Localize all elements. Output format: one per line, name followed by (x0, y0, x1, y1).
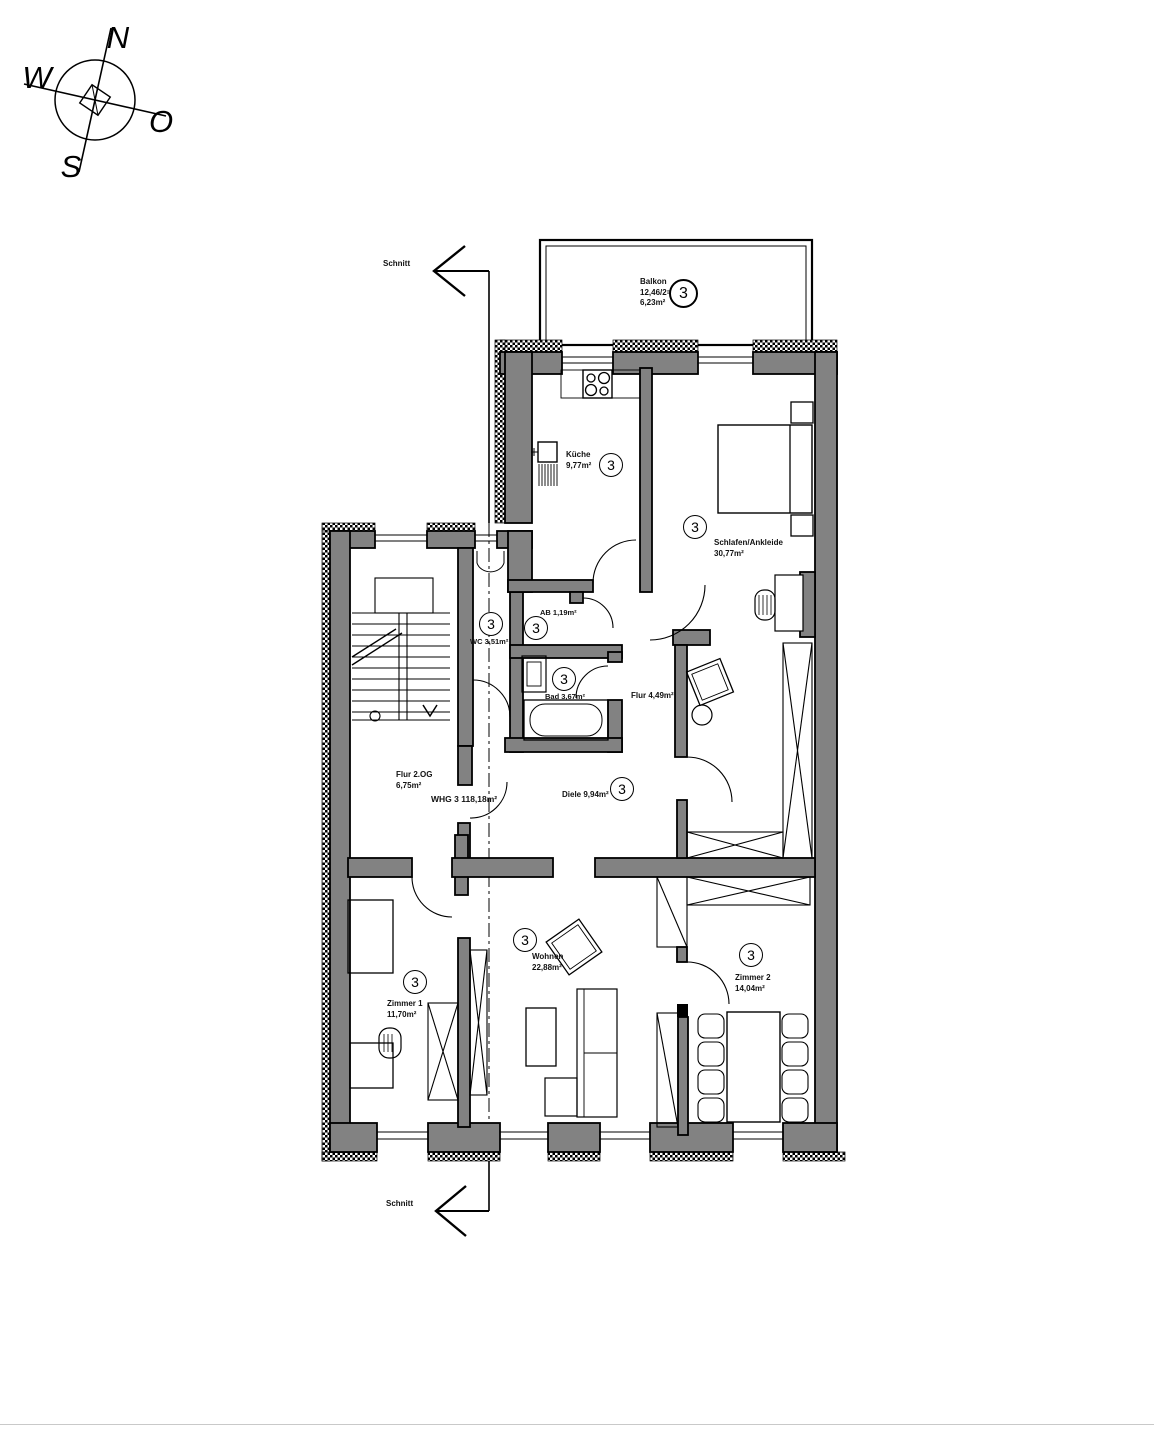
room-name: Schlafen/Ankleide (714, 538, 783, 549)
room-label-kueche: Küche 9,77m² (566, 450, 591, 471)
walls (330, 352, 837, 1152)
room-label-zimmer2: Zimmer 2 14,04m² (735, 973, 771, 994)
desk (350, 1043, 393, 1088)
compass-rose (24, 28, 166, 172)
door-jamb (677, 1004, 688, 1017)
floor-plan-canvas: N W O S (0, 0, 1154, 1430)
room-number-zimmer1: 3 (403, 970, 427, 994)
section-mark-top: Schnitt (383, 259, 410, 270)
room-label-schlafen: Schlafen/Ankleide 30,77m² (714, 538, 783, 559)
room-number-bad: 3 (552, 667, 576, 691)
door-zimmer2 (687, 962, 729, 1004)
section-mark-bottom: Schnitt (386, 1199, 413, 1210)
room-number-wc: 3 (479, 612, 503, 636)
room-name: Flur 2.OG (396, 770, 432, 781)
room-area: 14,04m² (735, 984, 771, 995)
room-name: Diele 9,94m² (562, 790, 609, 801)
tilted-chair (687, 659, 734, 706)
section-mark-top-text: Schnitt (383, 259, 410, 268)
room-number-balkon: 3 (669, 279, 698, 308)
room-number-zimmer2: 3 (739, 943, 763, 967)
section-mark-bottom-text: Schnitt (386, 1199, 413, 1208)
unit-label: WHG 3 118,18m² (431, 794, 497, 805)
compass-west-label: W (22, 60, 54, 95)
stool (692, 705, 712, 725)
compass-north-label: N (107, 20, 130, 55)
page-edge-line (0, 1424, 1154, 1425)
kitchen-sink (538, 442, 557, 462)
room-area-calc: 12,46/2= (640, 288, 671, 299)
door-wc (473, 680, 510, 717)
wc-basin (477, 551, 504, 572)
room-label-flur: Flur 4,49m² (631, 691, 674, 702)
door-kueche (593, 540, 636, 583)
room-name: AB 1,19m² (540, 608, 577, 619)
dining-table (727, 1012, 780, 1122)
room-area: 11,70m² (387, 1010, 423, 1021)
compass-east-label: O (149, 104, 173, 139)
dining-chairs (698, 1014, 808, 1122)
room-area: 22,88m² (532, 963, 563, 974)
room-number-diele: 3 (610, 777, 634, 801)
kitchen-appliance (539, 464, 557, 486)
door-ankleide (687, 757, 732, 802)
room-number-wohnen: 3 (513, 928, 537, 952)
room-number-kueche: 3 (599, 453, 623, 477)
room-label-flur-og: Flur 2.OG 6,75m² (396, 770, 432, 791)
unit-label-text: WHG 3 118,18m² (431, 794, 497, 804)
room-name: Küche (566, 450, 591, 461)
door-zimmer1 (412, 877, 452, 917)
room-number-schlafen: 3 (683, 515, 707, 539)
nightstand (791, 515, 813, 536)
room-label-ab: AB 1,19m² (540, 608, 577, 619)
room-area: 6,75m² (396, 781, 432, 792)
room-label-bad: Bad 3,67m² (545, 692, 585, 703)
bathtub (524, 700, 608, 740)
room-name: Bad 3,67m² (545, 692, 585, 703)
compass-labels: N W O S (22, 20, 173, 184)
desk-chair (755, 590, 775, 620)
stair-direction-arrow (423, 705, 437, 716)
door-ab (583, 598, 613, 628)
compass-south-label: S (61, 149, 82, 184)
floor-plan-page: N W O S (0, 0, 1154, 1430)
bed (718, 425, 812, 513)
coffee-table (526, 1008, 556, 1066)
desk (775, 575, 803, 631)
nightstand (791, 402, 813, 423)
room-label-wohnen: Wohnen 22,88m² (532, 952, 563, 973)
room-area: 9,77m² (566, 461, 591, 472)
room-name: Wohnen (532, 952, 563, 963)
room-label-diele: Diele 9,94m² (562, 790, 609, 801)
room-label-balkon: Balkon 12,46/2= 6,23m² (640, 277, 671, 309)
room-name: Zimmer 2 (735, 973, 771, 984)
toilet (522, 656, 546, 692)
room-area: 6,23m² (640, 298, 671, 309)
room-name: Flur 4,49m² (631, 691, 674, 702)
room-area: 30,77m² (714, 549, 783, 560)
room-number-ab: 3 (524, 616, 548, 640)
room-name: Balkon (640, 277, 671, 288)
room-name: WC 3,51m² (470, 637, 508, 648)
room-name: Zimmer 1 (387, 999, 423, 1010)
room-label-zimmer1: Zimmer 1 11,70m² (387, 999, 423, 1020)
cupboard (348, 900, 393, 973)
room-label-wc: WC 3,51m² (470, 637, 508, 648)
staircase (352, 578, 450, 721)
